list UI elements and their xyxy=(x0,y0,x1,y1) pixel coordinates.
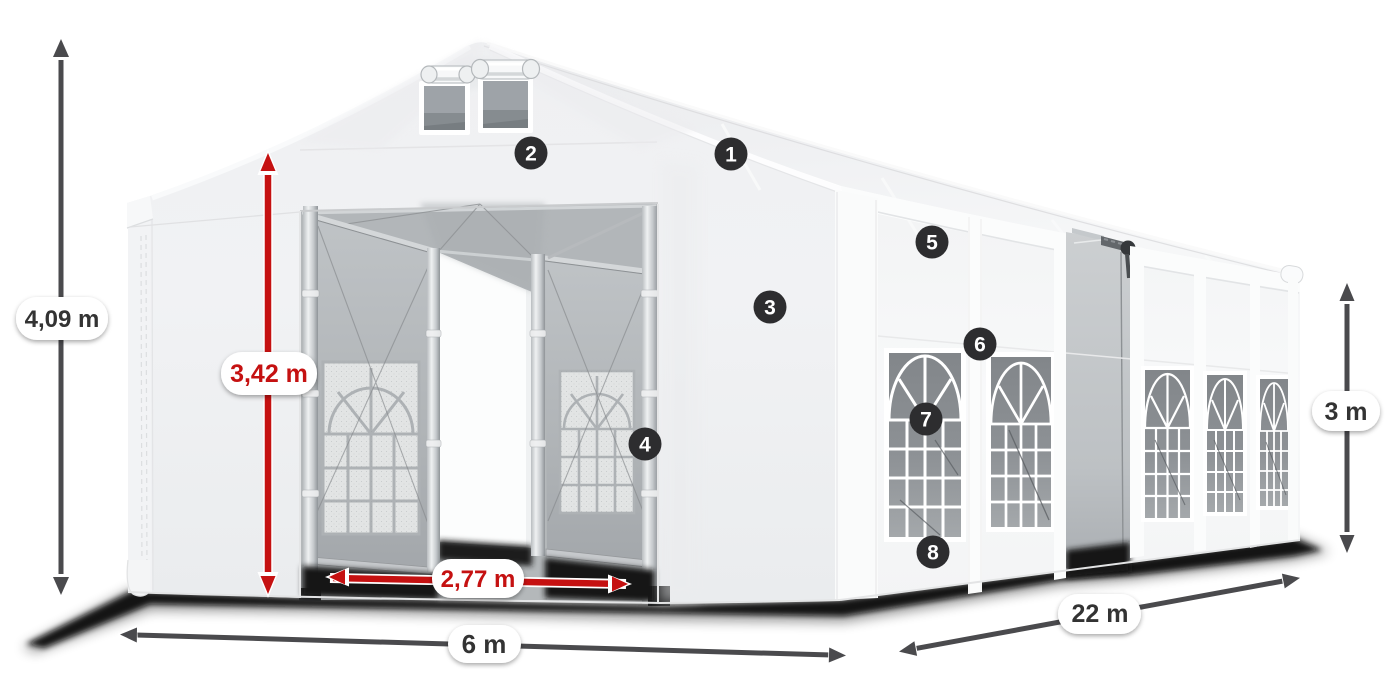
svg-text:7: 7 xyxy=(920,409,932,432)
svg-text:5: 5 xyxy=(926,232,938,255)
svg-text:22 m: 22 m xyxy=(1072,600,1129,628)
svg-text:2,77 m: 2,77 m xyxy=(441,566,516,593)
svg-text:8: 8 xyxy=(927,542,939,565)
svg-text:2: 2 xyxy=(525,143,537,166)
svg-text:1: 1 xyxy=(725,144,737,167)
svg-text:6 m: 6 m xyxy=(462,629,507,659)
svg-text:6: 6 xyxy=(974,334,986,357)
svg-text:4,09 m: 4,09 m xyxy=(25,306,100,333)
svg-text:3 m: 3 m xyxy=(1324,398,1367,426)
svg-text:4: 4 xyxy=(639,434,651,457)
svg-text:3,42 m: 3,42 m xyxy=(230,360,308,388)
svg-text:3: 3 xyxy=(764,297,776,320)
